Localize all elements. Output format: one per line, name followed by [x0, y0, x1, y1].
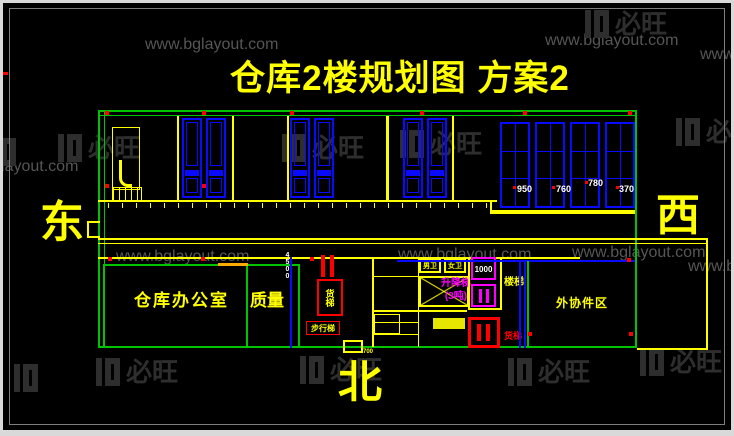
annotations: 仓库2楼规划图 方案2 东 西 北: [0, 0, 734, 436]
compass-east: 东: [40, 201, 84, 245]
drawing-title: 仓库2楼规划图 方案2: [180, 50, 620, 101]
compass-west: 西: [656, 194, 700, 238]
cad-canvas: www.bglayout.com www.bglayout.com www.bg…: [0, 0, 734, 436]
compass-north: 北: [338, 361, 382, 405]
